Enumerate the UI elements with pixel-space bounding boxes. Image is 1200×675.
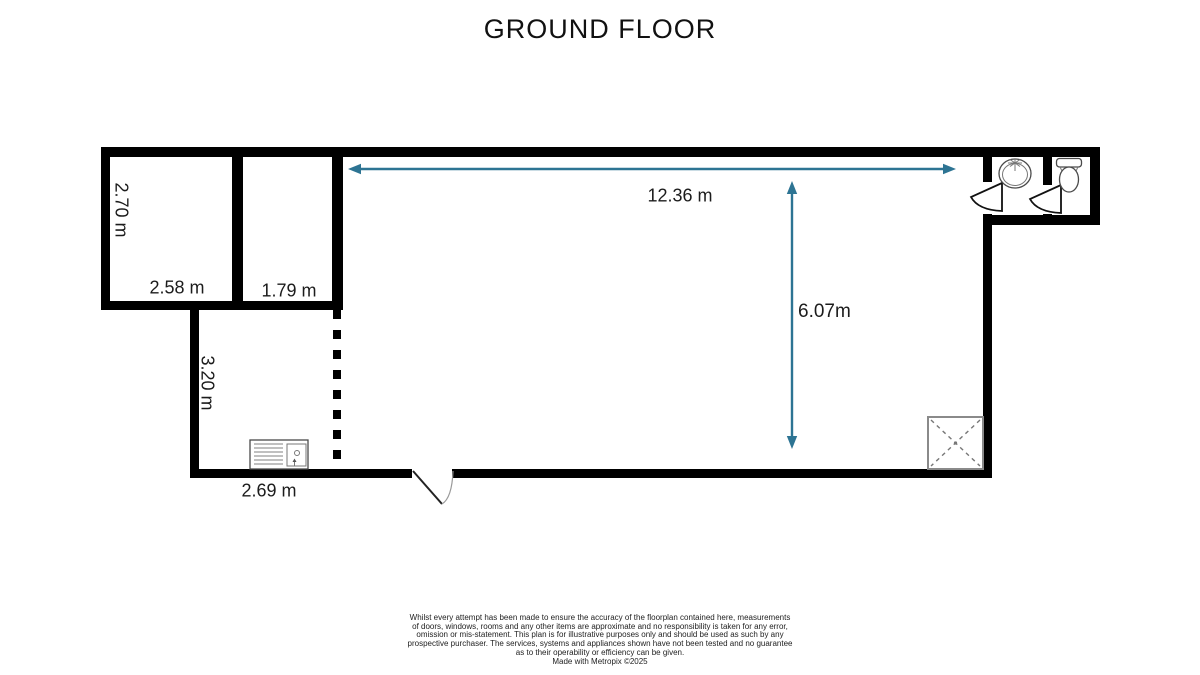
width-dimension-arrow bbox=[348, 164, 956, 174]
shower-tray-icon bbox=[928, 417, 983, 469]
floorplan-drawing bbox=[0, 0, 1200, 675]
cloakroom-door-swing-icon bbox=[971, 183, 1002, 211]
wc-door-swing-icon bbox=[1030, 185, 1061, 213]
dimension-label-main-room-width: 12.36 m bbox=[647, 186, 712, 207]
kitchen-sink-icon bbox=[250, 440, 308, 469]
dimension-label-room1-width: 2.58 m bbox=[149, 278, 204, 299]
entrance-door-swing-icon bbox=[413, 471, 453, 504]
disclaimer-text: Whilst every attempt has been made to en… bbox=[0, 614, 1200, 666]
dimension-label-room2-width: 1.79 m bbox=[261, 281, 316, 302]
dimension-label-lower-room-width: 2.69 m bbox=[241, 481, 296, 502]
floorplan-page: GROUND FLOOR bbox=[0, 0, 1200, 675]
dimension-label-lower-room-height: 3.20 m bbox=[197, 355, 218, 410]
wash-basin-icon bbox=[999, 159, 1031, 188]
dimension-label-room1-height: 2.70 m bbox=[111, 182, 132, 237]
height-dimension-arrow bbox=[787, 181, 797, 449]
dimension-label-main-room-height: 6.07m bbox=[798, 301, 851, 323]
